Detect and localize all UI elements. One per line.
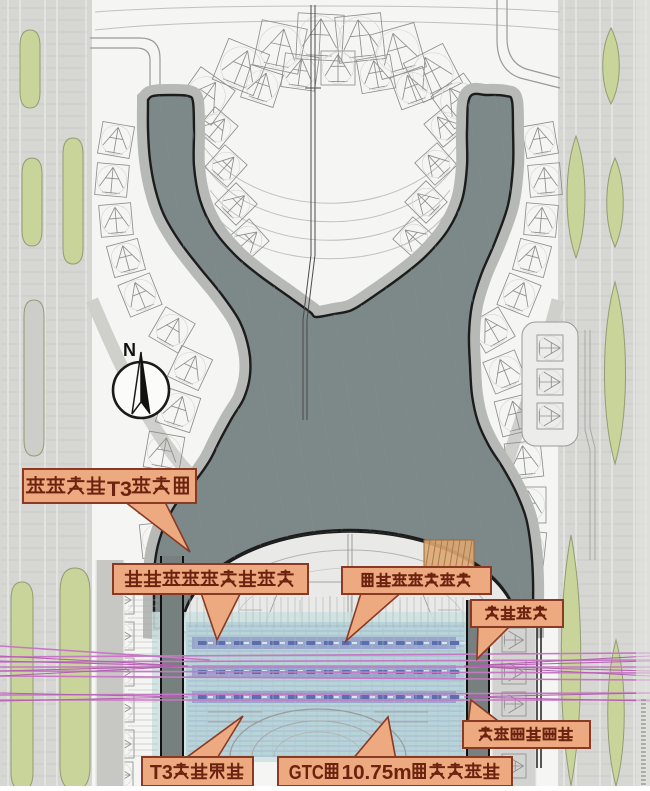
svg-text:N: N — [123, 340, 136, 360]
svg-text:T3: T3 — [150, 762, 173, 784]
svg-text:T3: T3 — [107, 476, 132, 501]
svg-text:10.75m: 10.75m — [342, 762, 412, 784]
svg-text:GTC: GTC — [289, 762, 324, 784]
